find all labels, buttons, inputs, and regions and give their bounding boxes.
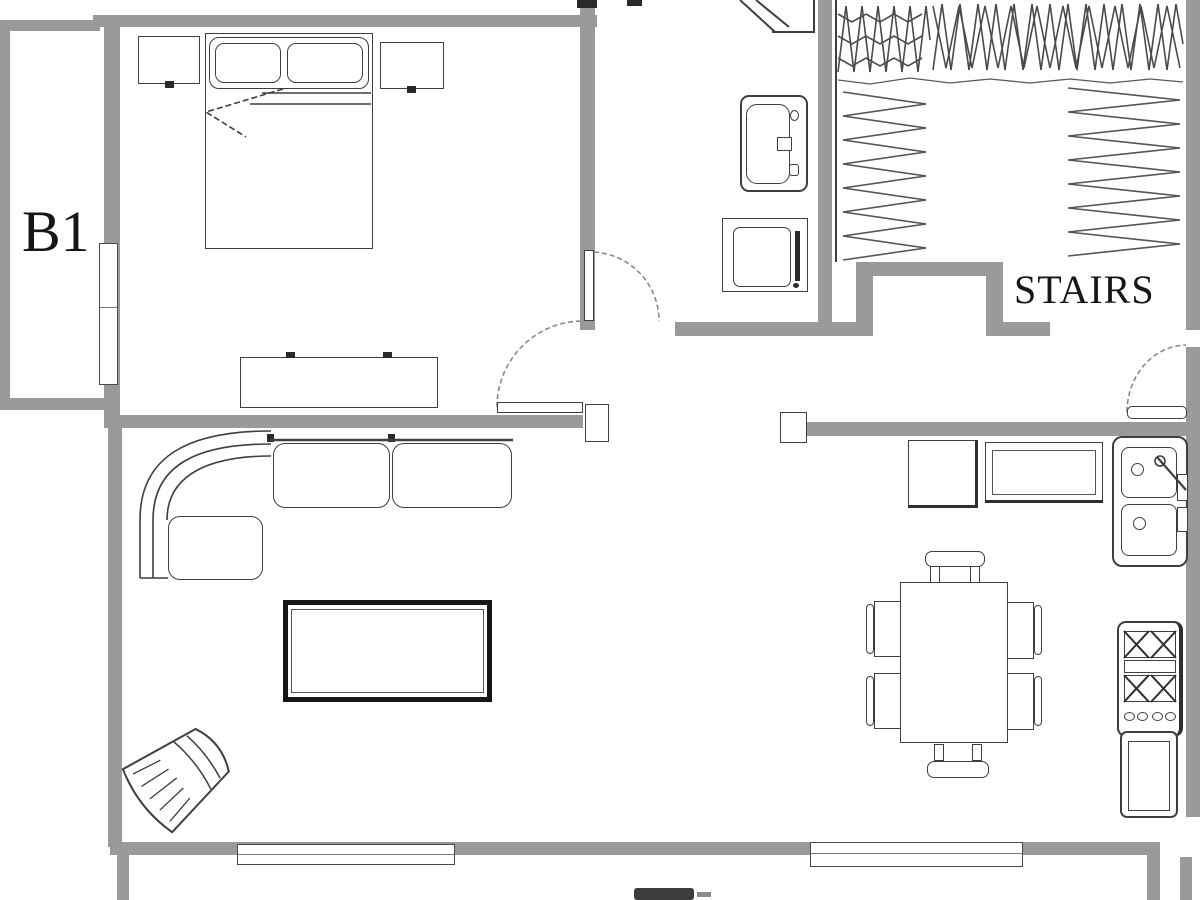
stove-knob-1 <box>1124 712 1135 721</box>
kitchen-sink-tab-2 <box>1177 507 1188 532</box>
kitchen-counter-inner <box>992 450 1096 495</box>
dining-table <box>900 582 1008 743</box>
toilet-bowl <box>733 227 791 287</box>
wall-bottomright-bar <box>1180 857 1192 900</box>
stairs-hatch-top <box>838 4 1183 84</box>
kitchen-sink-drain-1 <box>1131 463 1144 476</box>
sofa-seat-2 <box>392 443 512 508</box>
stairs-hatch-right <box>1068 88 1180 256</box>
wall-bedroom-bottom <box>104 415 583 428</box>
b1-wall-window <box>99 243 118 385</box>
wall-topleft-horizontal <box>0 20 100 31</box>
pillow-left <box>215 43 281 83</box>
bottom-edge-mark <box>634 888 694 900</box>
corner-shower <box>740 0 814 33</box>
stove-knob-4 <box>1165 712 1176 721</box>
dresser-knob-left <box>286 352 295 358</box>
base-cabinet-inner <box>1128 741 1170 811</box>
window-bottom-right <box>810 842 1023 867</box>
bathroom-sink-tap-dot <box>790 110 799 121</box>
wall-living-left <box>108 415 122 847</box>
bathroom-sink-drain <box>789 164 799 176</box>
sofa-joint-dot-1 <box>267 434 274 442</box>
stove-burner-frame-2 <box>1124 675 1176 702</box>
wall-bottomright-corner <box>1147 843 1160 900</box>
dining-chair-right-1-seat <box>1007 602 1034 659</box>
stove-knob-3 <box>1152 712 1163 721</box>
wall-right-upper <box>1186 0 1200 330</box>
wall-right-lower <box>1186 347 1200 817</box>
dining-chair-left-1-back <box>866 604 874 654</box>
room-label-b1: B1 <box>22 198 90 265</box>
pillow-right <box>287 43 363 83</box>
dining-chair-left-2-seat <box>874 673 901 729</box>
wall-bathroom-bottom <box>675 322 872 336</box>
wall-cap-mark <box>577 0 597 8</box>
floor-plan: B1 STAIRS <box>0 0 1200 900</box>
dining-chair-left-2-back <box>866 676 874 726</box>
sofa-seat-1 <box>273 443 390 508</box>
dining-chair-bottom-back <box>927 761 989 778</box>
nightstand-right <box>380 42 444 89</box>
stove-burner-frame-1 <box>1124 631 1176 658</box>
bedroom-door-leaf <box>497 402 583 413</box>
dresser <box>240 357 438 408</box>
dining-chair-top-side-r <box>970 566 980 583</box>
kitchen-sink-basin-1 <box>1121 447 1177 498</box>
dining-chair-bottom-side-r <box>972 744 982 761</box>
coffee-table-inner <box>291 609 484 693</box>
nightstand-left-knob <box>165 81 174 88</box>
wall-left-outer <box>0 20 10 410</box>
entry-door-leaf <box>1127 406 1187 419</box>
wall-bottomleft-stub <box>117 855 129 900</box>
dining-chair-left-1-seat <box>874 601 901 657</box>
nightstand-left <box>138 36 200 84</box>
refrigerator <box>908 440 978 508</box>
bathroom-door-arc <box>594 252 659 321</box>
bedroom-door-arc <box>497 321 583 407</box>
wall-cap-mark-2 <box>627 0 642 6</box>
kitchen-sink-tab-1 <box>1177 474 1188 501</box>
dining-chair-top-back <box>925 551 985 567</box>
sofa-joint-dot-2 <box>388 434 395 442</box>
wall-kitchen-top <box>807 422 1200 436</box>
stairs-hatch-left <box>843 92 926 260</box>
wall-stairs-bottom-stub <box>986 322 1050 336</box>
stove-mid-band <box>1124 660 1176 673</box>
bottom-edge-mark-tail <box>697 892 711 897</box>
dresser-knob-right <box>383 352 392 358</box>
wall-stairs-notch-left-leg <box>856 262 873 336</box>
toilet-flush-dot <box>793 283 799 288</box>
kitchen-sink-drain-2 <box>1133 517 1146 530</box>
wall-stairs-notch-top <box>856 262 1003 276</box>
dining-chair-right-2-back <box>1034 676 1042 726</box>
wall-b1-bottom <box>0 398 110 410</box>
window-bottom-left <box>237 844 455 865</box>
opening-jamb-left <box>585 404 609 442</box>
stove-knob-2 <box>1137 712 1148 721</box>
dining-chair-bottom-side-l <box>934 744 944 761</box>
nightstand-right-knob <box>407 86 416 93</box>
dining-chair-right-2-seat <box>1007 673 1034 730</box>
room-label-stairs: STAIRS <box>1014 266 1155 313</box>
entry-door-arc <box>1127 345 1186 412</box>
sofa-corner-seat <box>168 516 263 580</box>
wall-bedroom-top <box>93 15 597 27</box>
wall-stairs-left <box>818 0 832 336</box>
toilet-flush-bar <box>795 231 800 281</box>
kitchen-sink-basin-2 <box>1121 504 1177 556</box>
bathroom-door-leaf <box>584 250 594 321</box>
bathroom-sink-faucet <box>777 137 792 151</box>
opening-jamb-right <box>780 412 807 443</box>
dining-chair-right-1-back <box>1034 605 1042 655</box>
corner-armchair <box>118 715 242 836</box>
dining-chair-top-side-l <box>930 566 940 583</box>
